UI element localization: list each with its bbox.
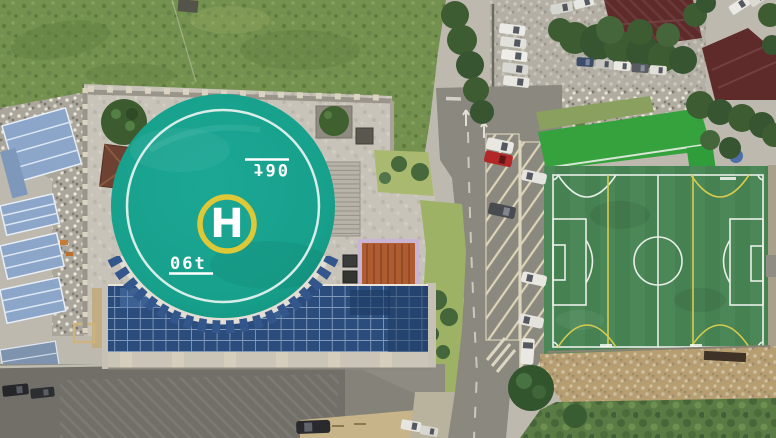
car <box>613 61 631 71</box>
car <box>595 59 613 69</box>
helipad: H 06t 06t <box>111 94 335 318</box>
dirt-strip <box>540 346 776 404</box>
parking-bays <box>486 134 552 372</box>
weight-marking-top: 06t <box>245 159 289 179</box>
car <box>296 420 330 434</box>
car <box>649 65 667 75</box>
svg-text:06t: 06t <box>251 159 288 179</box>
aerial-scene: H 06t 06t <box>0 0 776 438</box>
weight-marking-bottom: 06t <box>169 254 213 274</box>
skylight <box>343 271 357 283</box>
round-tree <box>508 365 554 411</box>
rock <box>178 0 199 13</box>
car <box>631 63 649 73</box>
skylight <box>343 255 357 267</box>
bottom-road <box>0 360 455 438</box>
aerial-photo: H 06t 06t <box>0 0 776 438</box>
svg-text:06t: 06t <box>170 254 207 274</box>
helipad-letter: H <box>210 201 243 247</box>
bush <box>563 404 587 428</box>
car <box>520 338 535 365</box>
soccer-field <box>544 166 770 354</box>
car <box>576 57 594 67</box>
